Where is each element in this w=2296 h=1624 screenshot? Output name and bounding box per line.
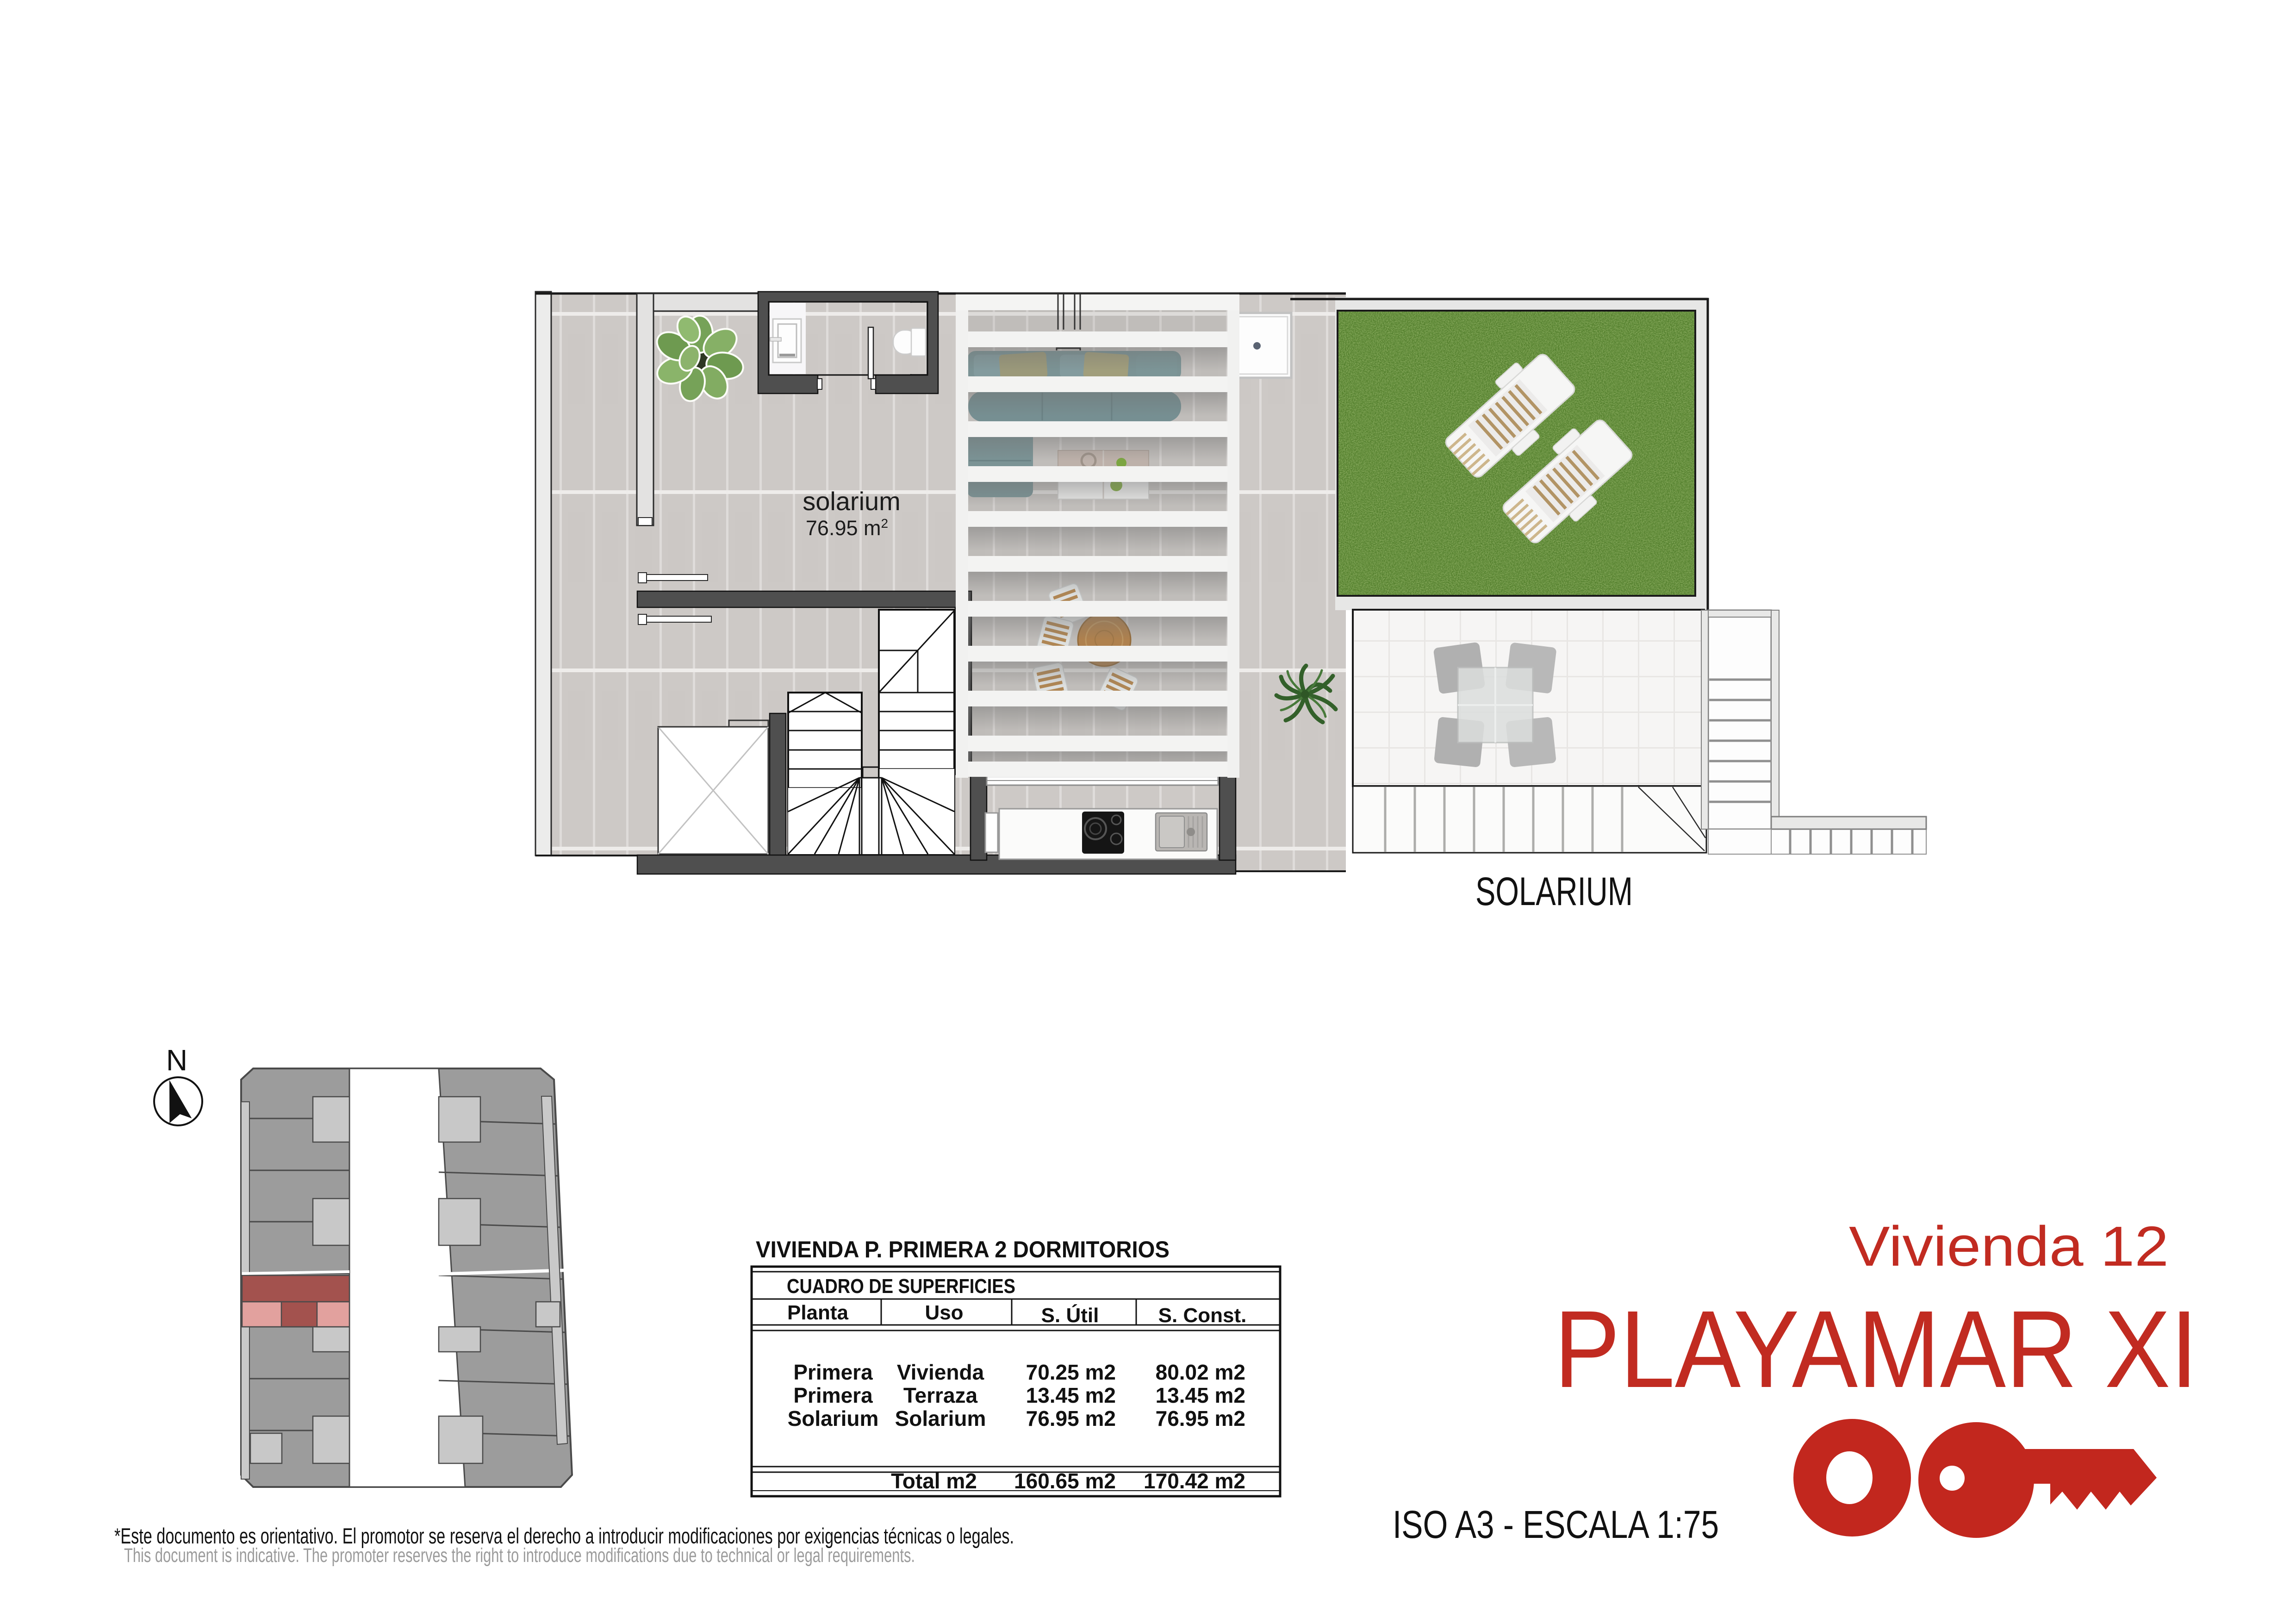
svg-text:Vivienda: Vivienda — [897, 1360, 984, 1384]
svg-text:Uso: Uso — [925, 1301, 963, 1324]
svg-text:solarium: solarium — [803, 487, 901, 516]
svg-text:Vivienda 12: Vivienda 12 — [1849, 1215, 2169, 1278]
svg-text:13.45 m2: 13.45 m2 — [1156, 1383, 1245, 1407]
svg-text:76.95 m2: 76.95 m2 — [1156, 1406, 1245, 1430]
svg-text:Planta: Planta — [787, 1301, 849, 1324]
svg-text:Solarium: Solarium — [895, 1406, 986, 1430]
svg-text:Primera: Primera — [793, 1383, 873, 1407]
svg-text:CUADRO DE SUPERFICIES: CUADRO DE SUPERFICIES — [787, 1275, 1015, 1298]
svg-text:PLAYAMAR XI: PLAYAMAR XI — [1554, 1288, 2198, 1411]
svg-text:170.42 m2: 170.42 m2 — [1144, 1469, 1245, 1493]
svg-text:160.65 m2: 160.65 m2 — [1014, 1469, 1116, 1493]
svg-text:80.02 m2: 80.02 m2 — [1156, 1360, 1245, 1384]
svg-text:N: N — [166, 1043, 187, 1077]
svg-text:Terraza: Terraza — [903, 1383, 978, 1407]
svg-text:S. Útil: S. Útil — [1041, 1304, 1099, 1327]
svg-text:Primera: Primera — [793, 1360, 873, 1384]
svg-text:ISO A3 - ESCALA 1:75: ISO A3 - ESCALA 1:75 — [1393, 1503, 1719, 1546]
svg-text:76.95 m2: 76.95 m2 — [806, 516, 888, 540]
svg-text:Total m2: Total m2 — [891, 1469, 977, 1493]
svg-text:13.45 m2: 13.45 m2 — [1026, 1383, 1116, 1407]
svg-text:This document is indicative. T: This document is indicative. The promote… — [124, 1544, 915, 1567]
svg-text:S. Const.: S. Const. — [1158, 1304, 1247, 1327]
svg-text:76.95 m2: 76.95 m2 — [1026, 1406, 1116, 1430]
svg-text:Solarium: Solarium — [788, 1406, 879, 1430]
svg-text:VIVIENDA P. PRIMERA 2 DORMITOR: VIVIENDA P. PRIMERA 2 DORMITORIOS — [756, 1237, 1170, 1262]
svg-text:SOLARIUM: SOLARIUM — [1475, 869, 1633, 914]
svg-text:70.25 m2: 70.25 m2 — [1026, 1360, 1116, 1384]
